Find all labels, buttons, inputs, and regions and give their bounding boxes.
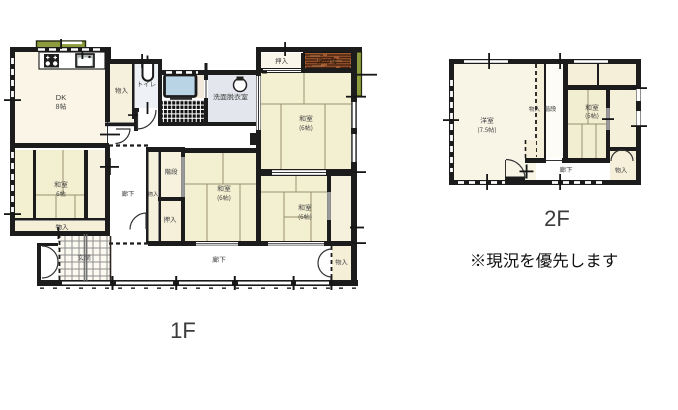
svg-text:1F: 1F xyxy=(170,318,196,343)
svg-text:2F: 2F xyxy=(544,206,570,231)
svg-text:DK: DK xyxy=(56,93,66,102)
